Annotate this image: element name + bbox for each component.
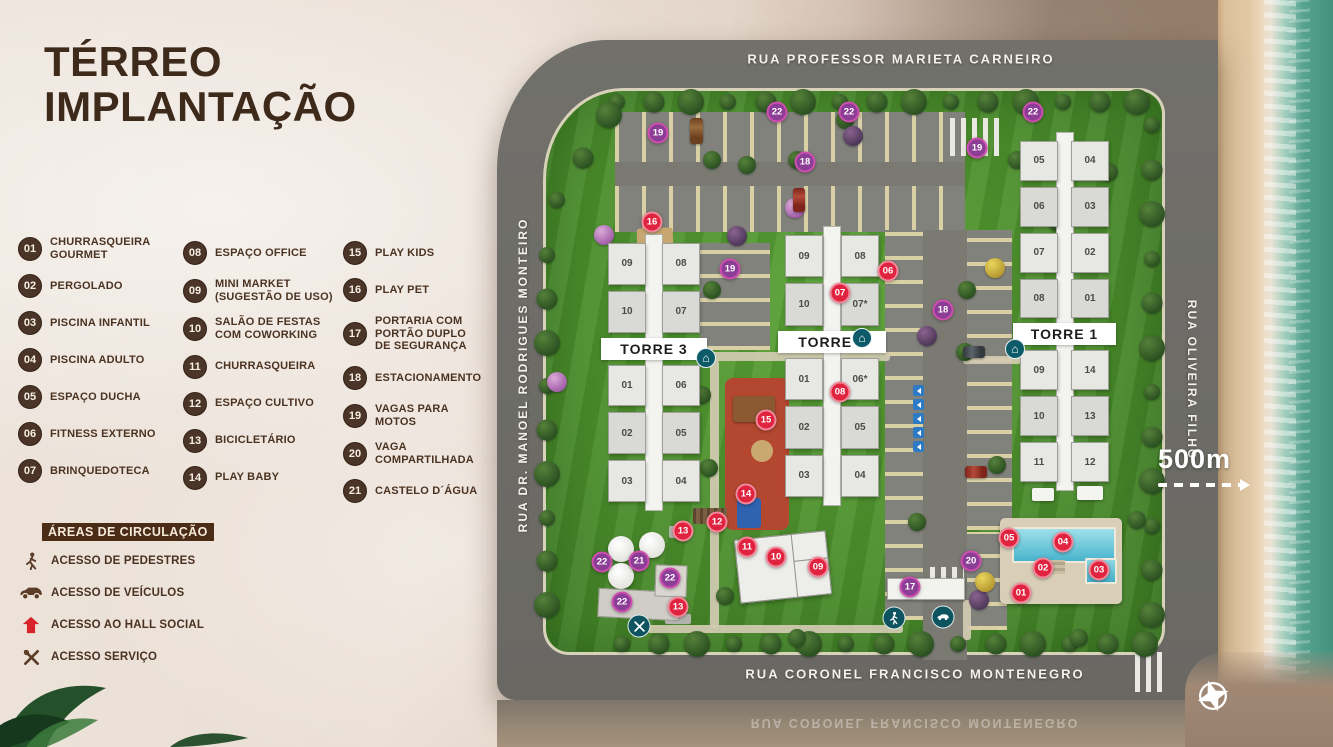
map-marker-19: 19 bbox=[720, 259, 741, 280]
yellow-bush bbox=[975, 572, 995, 592]
legend-badge: 20 bbox=[343, 442, 367, 466]
map-marker-14: 14 bbox=[736, 484, 757, 505]
service-access-icon bbox=[628, 615, 651, 638]
title-line2: IMPLANTAÇÃO bbox=[44, 83, 357, 130]
walkway bbox=[710, 360, 719, 628]
legend-badge: 17 bbox=[343, 322, 367, 346]
tree bbox=[790, 89, 816, 115]
tree bbox=[726, 636, 742, 652]
tree bbox=[901, 89, 927, 115]
tree bbox=[537, 288, 558, 309]
legend-item-14: 14PLAY BABY bbox=[183, 466, 348, 490]
legend-item-07: 07BRINQUEDOTECA bbox=[18, 459, 183, 483]
legend-item-11: 11CHURRASQUEIRA bbox=[183, 355, 348, 379]
map-marker-20: 20 bbox=[961, 551, 982, 572]
legend-badge: 06 bbox=[18, 422, 42, 446]
map-marker-18: 18 bbox=[933, 300, 954, 321]
circulation-legend: ÁREAS DE CIRCULAÇÃO ACESSO DE PEDESTRESA… bbox=[18, 523, 214, 669]
pedestrian-icon bbox=[18, 549, 44, 573]
legend-item-05: 05ESPAÇO DUCHA bbox=[18, 385, 183, 409]
tree bbox=[1128, 511, 1146, 529]
map-marker-22: 22 bbox=[1023, 102, 1044, 123]
legend-badge: 15 bbox=[343, 241, 367, 265]
legend-label: PORTARIA COM PORTÃO DUPLO DE SEGURANÇA bbox=[375, 315, 467, 353]
tower-torre-3: 09081007TORRE 3010602050304 bbox=[608, 240, 700, 505]
legend-label: ESTACIONAMENTO bbox=[375, 372, 481, 385]
unit-cell: 08 bbox=[1020, 279, 1058, 319]
map-marker-19: 19 bbox=[967, 138, 988, 159]
implantation-masterplan-page: TÉRREO IMPLANTAÇÃO 01CHURRASQUEIRA GOURM… bbox=[0, 0, 1333, 747]
tree bbox=[908, 513, 926, 531]
tree bbox=[644, 92, 665, 113]
tree bbox=[539, 247, 555, 263]
tree bbox=[738, 156, 756, 174]
legend-label: VAGAS PARA MOTOS bbox=[375, 403, 449, 428]
unit-cell: 08 bbox=[841, 235, 879, 277]
hall-social-icon: ⌂ bbox=[696, 348, 716, 368]
unit-cell: 06 bbox=[662, 365, 700, 407]
legend-item-04: 04PISCINA ADULTO bbox=[18, 348, 183, 372]
map-marker-21: 21 bbox=[629, 551, 650, 572]
tree bbox=[703, 151, 721, 169]
map-marker-06: 06 bbox=[878, 261, 899, 282]
tree bbox=[958, 281, 976, 299]
unit-row: 0914 bbox=[1020, 350, 1109, 390]
legend-badge: 11 bbox=[183, 355, 207, 379]
map-marker-11: 11 bbox=[737, 537, 758, 558]
tropical-leaf-decoration-small bbox=[170, 730, 250, 747]
ocean-waves bbox=[1289, 0, 1310, 747]
page-title: TÉRREO IMPLANTAÇÃO bbox=[44, 40, 357, 129]
legend-label: MINI MARKET (SUGESTÃO DE USO) bbox=[215, 278, 333, 303]
unit-cell: 07 bbox=[1020, 233, 1058, 273]
dashed-arrow bbox=[1158, 483, 1246, 487]
legend-item-06: 06FITNESS EXTERNO bbox=[18, 422, 183, 446]
site-plan-map: ⌂ ⌂ ⌂ RUA PROFESSOR MARIETA CARNEIRO RUA… bbox=[497, 40, 1218, 700]
map-marker-19: 19 bbox=[648, 123, 669, 144]
canopy bbox=[1032, 488, 1054, 501]
legend-label: VAGA COMPARTILHADA bbox=[375, 441, 474, 466]
unit-row: 0304 bbox=[608, 460, 700, 502]
map-marker-02: 02 bbox=[1033, 558, 1054, 579]
legend-badge: 08 bbox=[183, 241, 207, 265]
tree bbox=[700, 459, 718, 477]
tree bbox=[649, 634, 670, 655]
tower-torre-2: 09081007*TORRE 20106*02050304 bbox=[785, 232, 879, 500]
unit-cell: 09 bbox=[1020, 350, 1058, 390]
unit-cell: 08 bbox=[662, 243, 700, 285]
scale-label: 500m bbox=[1158, 444, 1246, 475]
unit-cell: 02 bbox=[608, 412, 646, 454]
unit-cell: 10 bbox=[608, 291, 646, 333]
direction-sign bbox=[913, 413, 924, 424]
unit-cell: 10 bbox=[1020, 396, 1058, 436]
legend-item-12: 12ESPAÇO CULTIVO bbox=[183, 392, 348, 416]
tree bbox=[573, 147, 594, 168]
circulation-heading: ÁREAS DE CIRCULAÇÃO bbox=[42, 523, 214, 541]
legend-item-01: 01CHURRASQUEIRA GOURMET bbox=[18, 236, 183, 261]
unit-row: 0106 bbox=[608, 365, 700, 407]
legend-badge: 21 bbox=[343, 479, 367, 503]
legend-label: PLAY BABY bbox=[215, 471, 279, 484]
legend-badge: 19 bbox=[343, 404, 367, 428]
parking-strip-left bbox=[885, 230, 923, 620]
hall-social-icon: ⌂ bbox=[1005, 339, 1025, 359]
map-marker-18: 18 bbox=[795, 152, 816, 173]
unit-cell: 03 bbox=[608, 460, 646, 502]
legend-badge: 04 bbox=[18, 348, 42, 372]
legend-item-19: 19VAGAS PARA MOTOS bbox=[343, 403, 508, 428]
unit-cell: 05 bbox=[662, 412, 700, 454]
map-marker-22: 22 bbox=[592, 552, 613, 573]
legend-column-3: 15PLAY KIDS16PLAY PET17PORTARIA COM PORT… bbox=[343, 241, 508, 503]
legend-label: PERGOLADO bbox=[50, 280, 123, 293]
legend-label: BICICLETÁRIO bbox=[215, 434, 296, 447]
tree bbox=[549, 192, 565, 208]
tree bbox=[684, 631, 710, 657]
legend-label: CHURRASQUEIRA GOURMET bbox=[50, 236, 150, 261]
tree bbox=[788, 629, 806, 647]
unit-cell: 05 bbox=[841, 406, 879, 448]
unit-cell: 04 bbox=[841, 455, 879, 497]
tree bbox=[978, 92, 999, 113]
tropical-leaf-decoration bbox=[0, 664, 154, 747]
tower-name: TORRE 1 bbox=[1013, 323, 1116, 345]
unit-cell: 03 bbox=[785, 455, 823, 497]
legend-badge: 13 bbox=[183, 429, 207, 453]
map-marker-22: 22 bbox=[767, 102, 788, 123]
hall-icon bbox=[18, 613, 44, 637]
tree bbox=[596, 102, 622, 128]
legend-label: CASTELO D´ÁGUA bbox=[375, 485, 477, 498]
map-marker-22: 22 bbox=[839, 102, 860, 123]
tree bbox=[761, 634, 782, 655]
direction-sign bbox=[913, 399, 924, 410]
map-marker-17: 17 bbox=[900, 577, 921, 598]
legend-item-10: 10SALÃO DE FESTAS COM COWORKING bbox=[183, 316, 348, 341]
tree bbox=[950, 636, 966, 652]
playground-area bbox=[725, 378, 789, 530]
legend-label: CHURRASQUEIRA bbox=[215, 360, 315, 373]
tree bbox=[873, 634, 894, 655]
pedestrian-access-icon bbox=[883, 607, 906, 630]
legend-item-13: 13BICICLETÁRIO bbox=[183, 429, 348, 453]
tree bbox=[1144, 518, 1160, 534]
unit-cell: 09 bbox=[608, 243, 646, 285]
legend-badge: 12 bbox=[183, 392, 207, 416]
legend-item-08: 08ESPAÇO OFFICE bbox=[183, 241, 348, 265]
legend-badge: 14 bbox=[183, 466, 207, 490]
tree bbox=[1070, 629, 1088, 647]
unit-cell: 02 bbox=[785, 406, 823, 448]
unit-row: 0908 bbox=[785, 235, 879, 277]
unit-cell: 13 bbox=[1071, 396, 1109, 436]
driving-car bbox=[963, 346, 985, 358]
unit-cell: 01 bbox=[1071, 279, 1109, 319]
parked-car bbox=[965, 466, 987, 478]
plum-bush bbox=[727, 226, 747, 246]
unit-cell: 07 bbox=[662, 291, 700, 333]
legend-label: FITNESS EXTERNO bbox=[50, 428, 156, 441]
map-marker-13: 13 bbox=[673, 521, 694, 542]
legend-column-2: 08ESPAÇO OFFICE09MINI MARKET (SUGESTÃO D… bbox=[183, 241, 348, 490]
legend-column-1: 01CHURRASQUEIRA GOURMET02PERGOLADO03PISC… bbox=[18, 236, 183, 483]
unit-cell: 03 bbox=[1071, 187, 1109, 227]
tree bbox=[720, 94, 736, 110]
map-marker-16: 16 bbox=[642, 212, 663, 233]
map-marker-07: 07 bbox=[830, 283, 851, 304]
legend-item-02: 02PERGOLADO bbox=[18, 274, 183, 298]
tree bbox=[988, 456, 1006, 474]
tree bbox=[838, 636, 854, 652]
vehicle-access-icon bbox=[932, 606, 955, 629]
legend-badge: 01 bbox=[18, 237, 42, 261]
street-name-bottom: RUA CORONEL FRANCISCO MONTENEGRO bbox=[745, 667, 1084, 682]
unit-cell: 06 bbox=[1020, 187, 1058, 227]
map-marker-01: 01 bbox=[1011, 583, 1032, 604]
legend-item-20: 20VAGA COMPARTILHADA bbox=[343, 441, 508, 466]
legend-item-16: 16PLAY PET bbox=[343, 278, 508, 302]
scale-indicator: 500m bbox=[1158, 444, 1246, 487]
tree bbox=[1124, 89, 1150, 115]
tree bbox=[678, 89, 704, 115]
tree bbox=[1142, 560, 1163, 581]
unit-row: 0504 bbox=[1020, 141, 1109, 181]
tree bbox=[1132, 631, 1158, 657]
plum-bush bbox=[969, 590, 989, 610]
tree bbox=[1089, 92, 1110, 113]
map-marker-10: 10 bbox=[766, 547, 787, 568]
legend-badge: 02 bbox=[18, 274, 42, 298]
legend-item-21: 21CASTELO D´ÁGUA bbox=[343, 479, 508, 503]
legend-item-17: 17PORTARIA COM PORTÃO DUPLO DE SEGURANÇA bbox=[343, 315, 508, 353]
parked-car bbox=[793, 188, 805, 212]
unit-row: 0702 bbox=[1020, 233, 1109, 273]
unit-cell: 05 bbox=[1020, 141, 1058, 181]
unit-cell: 04 bbox=[662, 460, 700, 502]
direction-sign bbox=[913, 427, 924, 438]
legend-label: PLAY PET bbox=[375, 284, 429, 297]
tree bbox=[867, 92, 888, 113]
tree bbox=[1139, 201, 1165, 227]
unit-row: 0603 bbox=[1020, 187, 1109, 227]
tree bbox=[1139, 335, 1165, 361]
tree bbox=[716, 587, 734, 605]
pink-bush bbox=[547, 372, 567, 392]
canopy bbox=[1077, 486, 1103, 500]
legend-label: PISCINA INFANTIL bbox=[50, 317, 150, 330]
unit-row: 1007 bbox=[608, 291, 700, 333]
legend-badge: 09 bbox=[183, 279, 207, 303]
circulation-item: ACESSO AO HALL SOCIAL bbox=[18, 613, 214, 637]
circulation-label: ACESSO DE PEDESTRES bbox=[51, 555, 195, 567]
unit-cell: 02 bbox=[1071, 233, 1109, 273]
tree bbox=[539, 510, 555, 526]
tree bbox=[1139, 602, 1165, 628]
map-marker-13: 13 bbox=[668, 597, 689, 618]
tree bbox=[943, 94, 959, 110]
unit-cell: 12 bbox=[1071, 442, 1109, 482]
car-icon bbox=[18, 581, 44, 605]
unit-row: 0801 bbox=[1020, 279, 1109, 319]
unit-row: 0908 bbox=[608, 243, 700, 285]
unit-row: 1013 bbox=[1020, 396, 1109, 436]
hall-social-icon: ⌂ bbox=[852, 328, 872, 348]
tree bbox=[537, 551, 558, 572]
circulation-item: ACESSO DE VEÍCULOS bbox=[18, 581, 214, 605]
legend-badge: 05 bbox=[18, 385, 42, 409]
tree bbox=[985, 634, 1006, 655]
tree bbox=[1055, 94, 1071, 110]
title-line1: TÉRREO bbox=[44, 38, 222, 85]
unit-cell: 10 bbox=[785, 283, 823, 325]
tree bbox=[703, 281, 721, 299]
tower-torre-1: 0504060307020801TORRE 1091410131112 bbox=[1020, 138, 1109, 485]
map-marker-08: 08 bbox=[830, 382, 851, 403]
unit-cell: 09 bbox=[785, 235, 823, 277]
unit-row: 0205 bbox=[785, 406, 879, 448]
walkway bbox=[963, 600, 971, 640]
tree bbox=[534, 592, 560, 618]
legend-item-03: 03PISCINA INFANTIL bbox=[18, 311, 183, 335]
unit-row: 1112 bbox=[1020, 442, 1109, 482]
map-marker-22: 22 bbox=[612, 592, 633, 613]
map-marker-04: 04 bbox=[1053, 532, 1074, 553]
map-marker-05: 05 bbox=[999, 528, 1020, 549]
legend-badge: 03 bbox=[18, 311, 42, 335]
tree bbox=[1020, 631, 1046, 657]
tower-name: TORRE 3 bbox=[601, 338, 707, 360]
legend-item-15: 15PLAY KIDS bbox=[343, 241, 508, 265]
legend-label: BRINQUEDOTECA bbox=[50, 465, 150, 478]
reflected-street-name: RUA CORONEL FRANCISCO MONTENEGRO bbox=[751, 716, 1080, 730]
walkway bbox=[647, 625, 903, 633]
street-name-left: RUA DR. MANOEL RODRIGUES MONTEIRO bbox=[516, 218, 530, 533]
legend-label: PLAY KIDS bbox=[375, 247, 434, 260]
unit-cell: 11 bbox=[1020, 442, 1058, 482]
plum-bush bbox=[917, 326, 937, 346]
tree bbox=[1142, 159, 1163, 180]
legend-label: ESPAÇO CULTIVO bbox=[215, 397, 314, 410]
sand-circle bbox=[751, 440, 773, 462]
map-marker-15: 15 bbox=[756, 410, 777, 431]
gatehouse bbox=[887, 578, 965, 600]
legend-label: PISCINA ADULTO bbox=[50, 354, 144, 367]
unit-cell: 04 bbox=[1071, 141, 1109, 181]
street-name-top: RUA PROFESSOR MARIETA CARNEIRO bbox=[747, 52, 1054, 67]
direction-sign bbox=[913, 441, 924, 452]
legend-label: SALÃO DE FESTAS COM COWORKING bbox=[215, 316, 320, 341]
tree bbox=[908, 631, 934, 657]
tree bbox=[534, 330, 560, 356]
floor-reflection: RUA CORONEL FRANCISCO MONTENEGRO bbox=[497, 700, 1218, 747]
map-marker-09: 09 bbox=[808, 557, 829, 578]
circulation-label: ACESSO DE VEÍCULOS bbox=[51, 587, 184, 599]
map-marker-12: 12 bbox=[707, 512, 728, 533]
circulation-label: ACESSO AO HALL SOCIAL bbox=[51, 619, 204, 631]
tree bbox=[1097, 634, 1118, 655]
tree bbox=[614, 636, 630, 652]
legend-badge: 07 bbox=[18, 459, 42, 483]
parked-car bbox=[690, 118, 703, 144]
legend-item-09: 09MINI MARKET (SUGESTÃO DE USO) bbox=[183, 278, 348, 303]
circulation-item: ACESSO DE PEDESTRES bbox=[18, 549, 214, 573]
legend-badge: 18 bbox=[343, 366, 367, 390]
unit-cell: 01 bbox=[608, 365, 646, 407]
beach-aerial bbox=[1218, 0, 1333, 747]
legend-item-18: 18ESTACIONAMENTO bbox=[343, 366, 508, 390]
direction-sign bbox=[913, 385, 924, 396]
map-marker-03: 03 bbox=[1089, 560, 1110, 581]
tree bbox=[1144, 117, 1160, 133]
map-marker-22: 22 bbox=[660, 568, 681, 589]
yellow-bush bbox=[985, 258, 1005, 278]
unit-row: 0205 bbox=[608, 412, 700, 454]
tree bbox=[534, 461, 560, 487]
unit-cell: 14 bbox=[1071, 350, 1109, 390]
tree bbox=[1144, 384, 1160, 400]
tree bbox=[537, 420, 558, 441]
crosswalk-beach bbox=[1135, 652, 1163, 692]
legend-label: ESPAÇO OFFICE bbox=[215, 247, 307, 260]
circulation-label: ACESSO SERVIÇO bbox=[51, 651, 157, 663]
legend-badge: 10 bbox=[183, 317, 207, 341]
tree bbox=[1142, 293, 1163, 314]
unit-cell: 01 bbox=[785, 358, 823, 400]
tree bbox=[1144, 251, 1160, 267]
unit-row: 0304 bbox=[785, 455, 879, 497]
street-name-right: RUA OLIVEIRA FILHO bbox=[1185, 300, 1199, 460]
plum-bush bbox=[843, 126, 863, 146]
legend-badge: 16 bbox=[343, 278, 367, 302]
legend-label: ESPAÇO DUCHA bbox=[50, 391, 141, 404]
